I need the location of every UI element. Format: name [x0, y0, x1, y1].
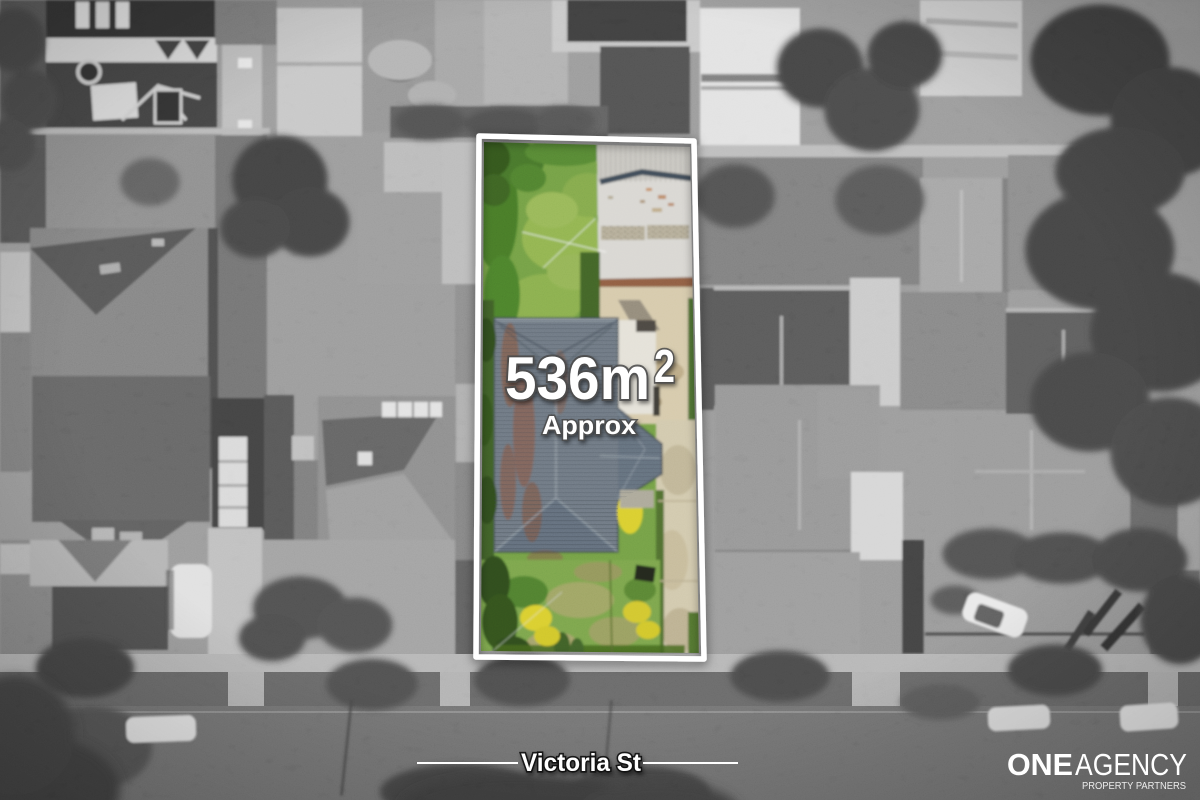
svg-text:ONE: ONE	[1007, 747, 1073, 782]
svg-text:Victoria St: Victoria St	[521, 749, 642, 777]
svg-text:Approx: Approx	[542, 410, 637, 440]
svg-text:536m: 536m	[505, 345, 650, 412]
svg-text:PROPERTY PARTNERS: PROPERTY PARTNERS	[1082, 781, 1186, 792]
svg-text:2: 2	[654, 340, 675, 392]
svg-text:AGENCY: AGENCY	[1075, 747, 1187, 782]
